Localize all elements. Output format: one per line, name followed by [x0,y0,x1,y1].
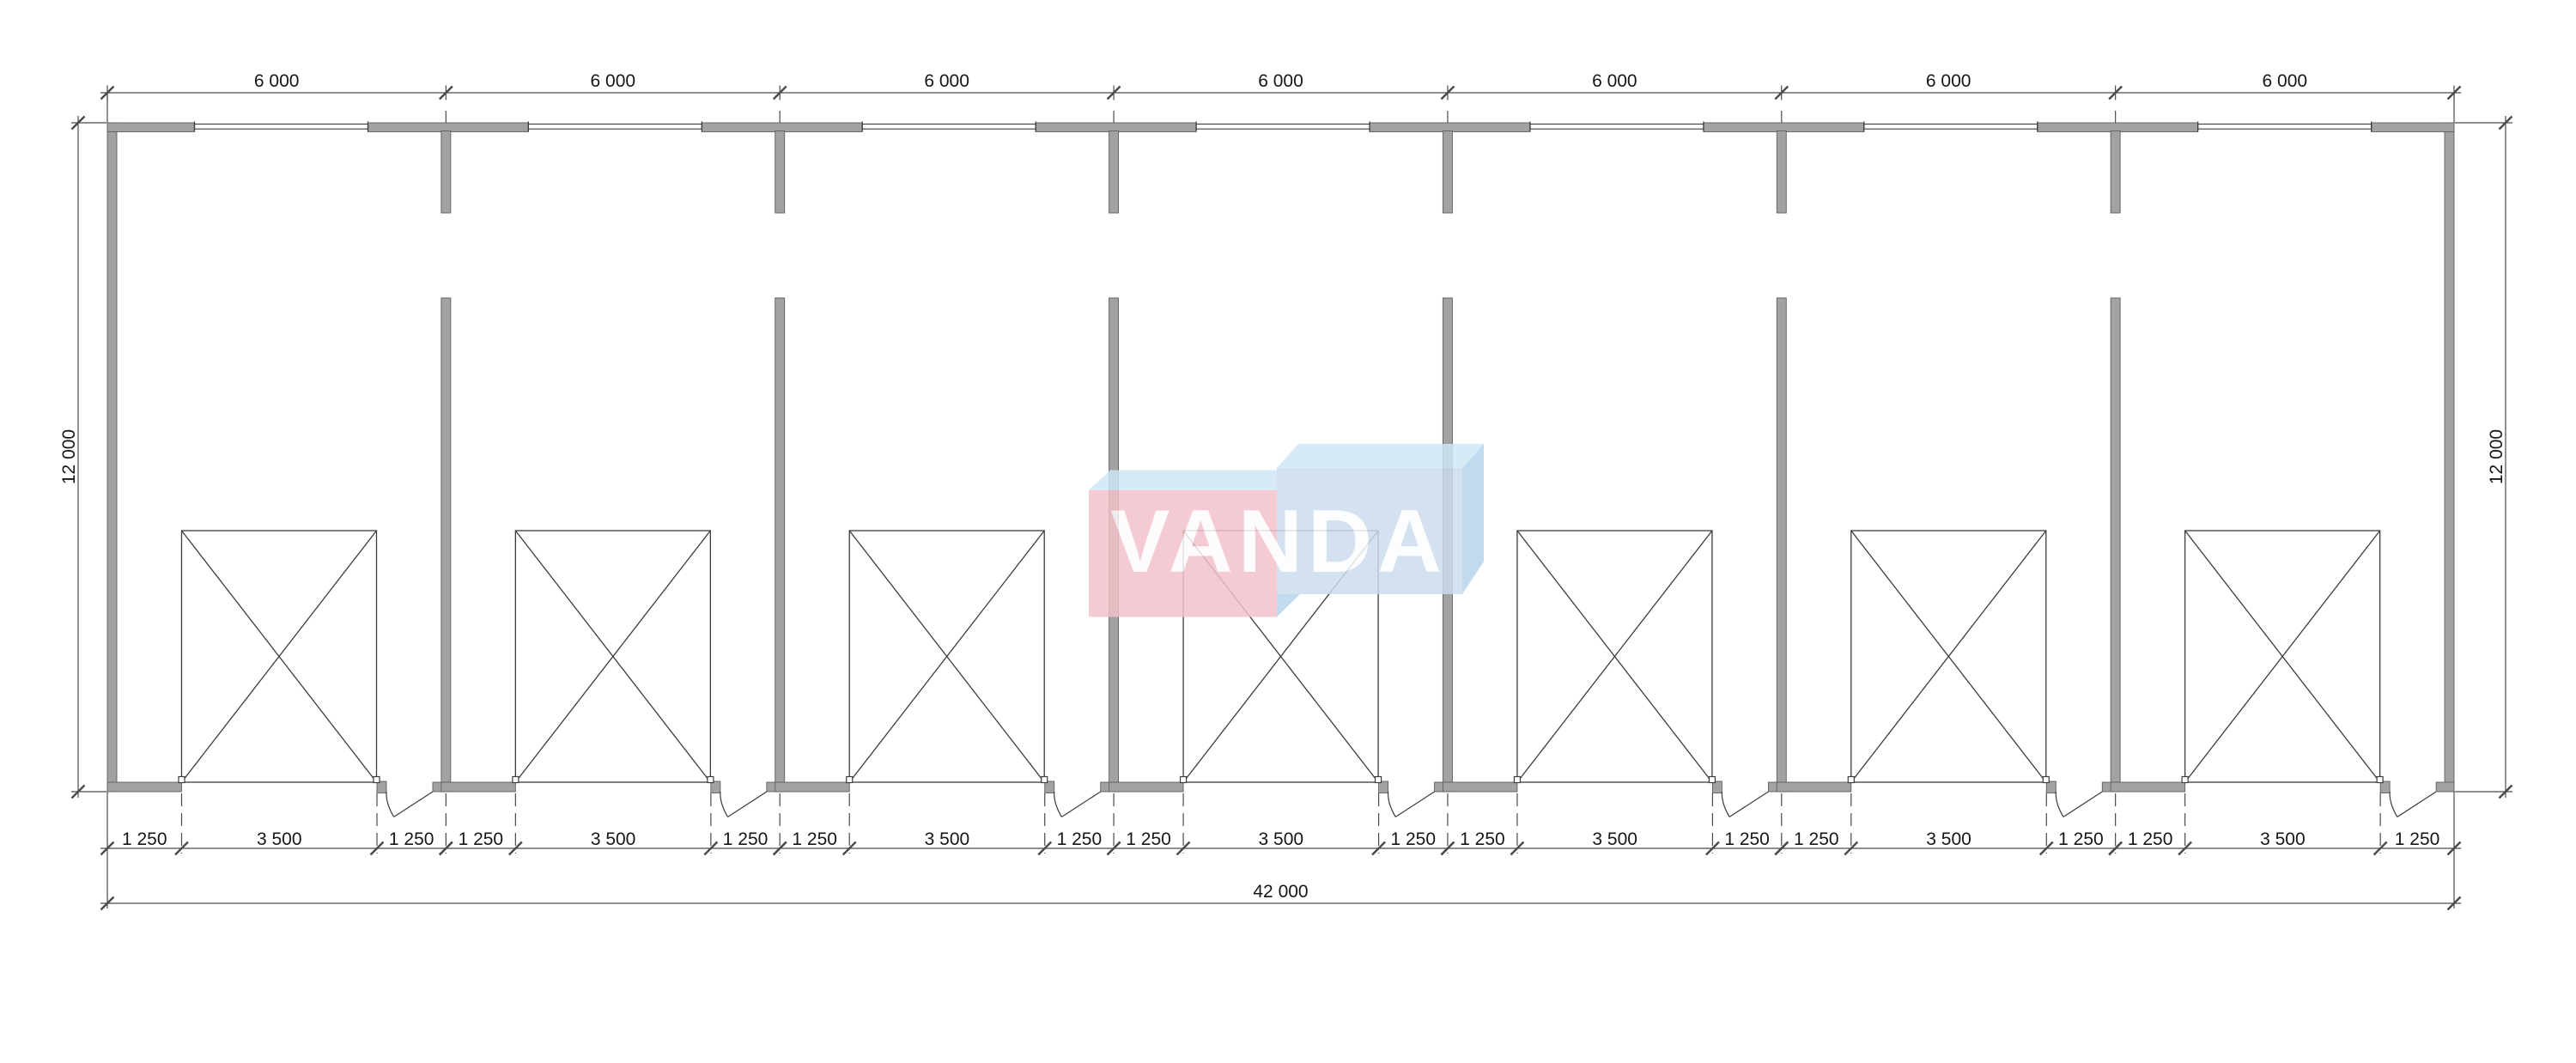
window-glazing [2198,125,2372,130]
door-leaf [1061,792,1100,817]
window-glazing [1196,125,1370,130]
wall-left [107,123,117,792]
dimension-right-label: 12 000 [2487,429,2506,484]
garage-jamb-square [2043,777,2049,783]
logo-blue-slab-corner-flap [1277,594,1300,617]
dim-label-side-segment: 1 250 [723,829,769,849]
wall-partition [2111,298,2120,792]
garage-jamb-square [1042,777,1048,783]
door-leaf [2397,792,2436,817]
logo-blue-slab-side-face [1462,444,1484,594]
dim-label-side-segment: 1 250 [1390,829,1436,849]
wall-bottom-segment [1443,782,1517,792]
dim-label-garage-opening: 3 500 [257,829,302,849]
door-swing-arc [1054,792,1062,817]
dim-label-side-segment: 1 250 [2128,829,2173,849]
door-leaf [394,792,433,817]
door-swing-arc [2056,792,2063,817]
walls [107,123,2454,793]
dim-label-bay-width: 6 000 [1258,71,1303,91]
door-swing-arc [386,792,394,817]
logo-watermark: VANDA [1089,444,1484,617]
dim-label-side-segment: 1 250 [2395,829,2440,849]
wall-bottom-segment [107,782,182,792]
dimension-bottom-labels: 1 2503 5001 2501 2503 5001 2501 2503 500… [122,829,2439,849]
wall-bottom-segment [2436,782,2454,792]
dim-label-garage-opening: 3 500 [1259,829,1304,849]
wall-partition-stub [2111,131,2120,214]
door-swing-arc [720,792,728,817]
dim-label-side-segment: 1 250 [1794,829,1839,849]
dim-label-bay-width: 6 000 [2263,71,2308,91]
garage-jamb-square [513,777,519,783]
dim-label-bay-width: 6 000 [924,71,969,91]
wall-bottom-segment [1109,782,1184,792]
logo-text: VANDA [1110,492,1447,592]
window-glazing [528,125,702,130]
garage-jamb-square [847,777,853,783]
dim-label-garage-opening: 3 500 [925,829,970,849]
wall-partition [441,298,451,792]
door-swing-arc [1722,792,1729,817]
garage-jamb-square [1376,777,1382,783]
dim-label-bay-width: 6 000 [1592,71,1637,91]
dim-label-depth-right: 12 000 [2487,429,2506,484]
wall-bottom-segment [775,782,850,792]
garage-jamb-square [1848,777,1854,783]
dim-label-total-width: 42 000 [1253,882,1308,902]
logo-blue-slab-top-face [1277,444,1484,468]
wall-right [2445,123,2454,792]
dim-label-garage-opening: 3 500 [591,829,636,849]
wall-partition [775,298,785,792]
wall-bottom-segment [2111,782,2185,792]
window-glazing [195,125,368,130]
wall-partition-stub [1109,131,1119,214]
garage-jamb-square [1709,777,1715,783]
wall-partition-stub [1443,131,1452,214]
garage-jamb-square [1181,777,1187,783]
wall-partition [1777,298,1786,792]
dim-label-side-segment: 1 250 [1057,829,1103,849]
dim-label-garage-opening: 3 500 [1592,829,1637,849]
dim-label-garage-opening: 3 500 [1926,829,1971,849]
door-leaf [1395,792,1434,817]
wall-partition-stub [441,131,451,214]
dimension-total-label: 42 000 [1253,882,1308,902]
dim-label-bay-width: 6 000 [591,71,636,91]
dimension-top [100,86,2461,124]
garage-jamb-square [708,777,714,783]
wall-bottom-segment [441,782,516,792]
door-leaf [728,792,767,817]
garage-jamb-square [2182,777,2188,783]
logo-pink-slab-top-face [1089,471,1298,491]
dim-label-side-segment: 1 250 [1126,829,1171,849]
wall-bottom-segment [1777,782,1851,792]
door-swing-arc [2390,792,2397,817]
window-glazing [1864,125,2038,130]
garage-jamb-square [374,777,380,783]
floor-plan-canvas: 6 0006 0006 0006 0006 0006 0006 0001 250… [0,0,2576,1063]
garage-jamb-square [1514,777,1520,783]
dim-label-garage-opening: 3 500 [2260,829,2306,849]
wall-partition-stub [775,131,785,214]
dim-label-side-segment: 1 250 [1724,829,1770,849]
dim-label-depth-left: 12 000 [59,429,79,484]
dim-label-side-segment: 1 250 [459,829,504,849]
garage-jamb-square [2377,777,2383,783]
dim-label-bay-width: 6 000 [1926,71,1971,91]
window-glazing [1530,125,1704,130]
dim-label-side-segment: 1 250 [792,829,837,849]
wall-partition-stub [1777,131,1786,214]
dimension-left-label: 12 000 [59,429,79,484]
floor-plan-page: 6 0006 0006 0006 0006 0006 0006 0001 250… [0,0,2576,1063]
door-leaf [1729,792,1768,817]
door-leaf [2063,792,2102,817]
dim-label-side-segment: 1 250 [1460,829,1505,849]
door-swing-arc [1388,792,1396,817]
dim-label-side-segment: 1 250 [2058,829,2104,849]
dim-label-side-segment: 1 250 [122,829,167,849]
dim-label-side-segment: 1 250 [389,829,434,849]
garage-jamb-square [179,777,185,783]
dim-label-bay-width: 6 000 [254,71,300,91]
window-glazing [862,125,1036,130]
dimension-top-labels: 6 0006 0006 0006 0006 0006 0006 000 [254,71,2307,91]
